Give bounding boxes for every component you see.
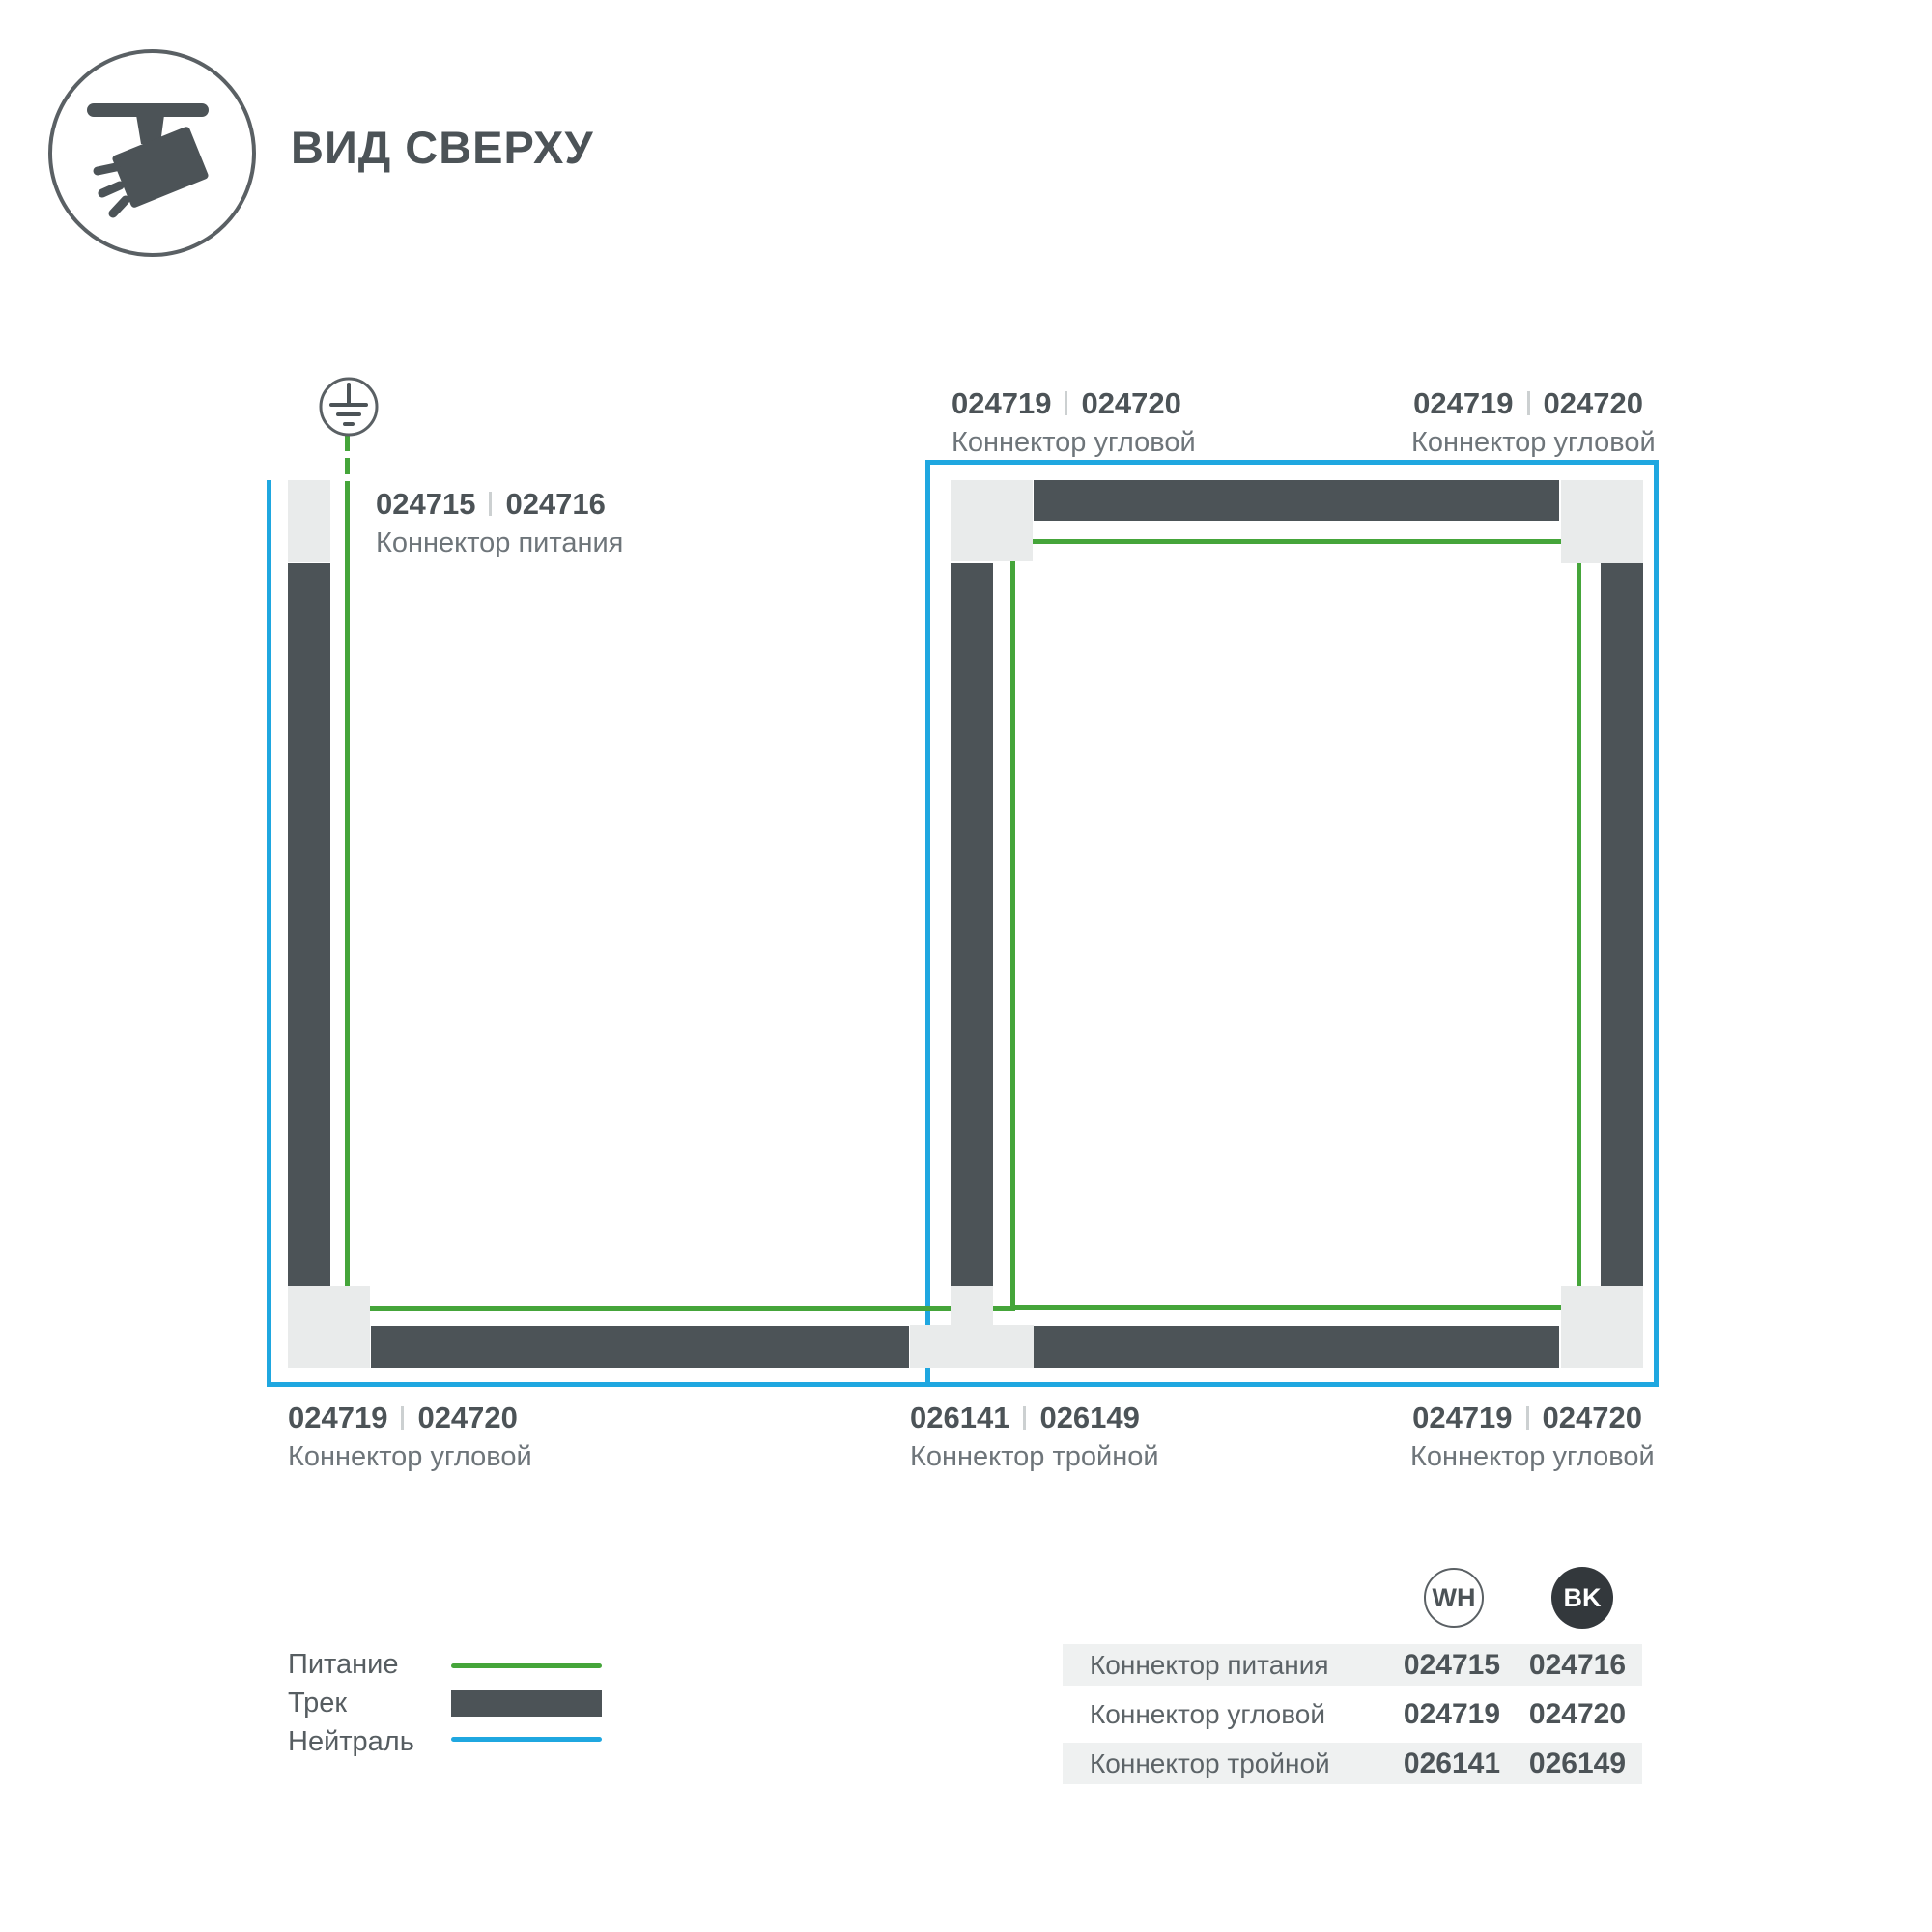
track-bar-right-vertical [1601, 563, 1643, 1286]
triple-connector-base [910, 1325, 1034, 1368]
label-name: Коннектор угловой [1411, 427, 1643, 459]
label-name: Коннектор угловой [1410, 1441, 1642, 1473]
row-bk-code: 026149 [1500, 1747, 1626, 1780]
label-power-connector: 024715 024716 Коннектор питания [376, 487, 623, 559]
row-name: Коннектор угловой [1063, 1699, 1375, 1730]
label-name: Коннектор тройной [910, 1441, 1159, 1473]
power-connector-piece [288, 480, 330, 562]
row-wh-code: 024715 [1375, 1649, 1500, 1682]
code-bk: 024720 [417, 1401, 517, 1435]
label-codes: 024719 024720 [288, 1401, 532, 1435]
code-wh: 024719 [288, 1401, 387, 1435]
legend-power-label: Питание [288, 1649, 398, 1681]
row-wh-code: 024719 [1375, 1698, 1500, 1731]
code-wh: 024719 [1412, 1401, 1512, 1435]
label-name: Коннектор питания [376, 527, 623, 559]
top-view-sheet: ВИД СВЕРХУ 024715 024716 Коннек [0, 0, 1932, 1932]
label-codes: 024719 024720 [1410, 1401, 1642, 1435]
label-codes: 024715 024716 [376, 487, 623, 522]
track-bar-right-bottom [1034, 1326, 1559, 1368]
corner-connector-piece-bottom-left [288, 1286, 370, 1368]
legend-power-swatch [451, 1663, 602, 1668]
track-bar-left-bottom [371, 1326, 909, 1368]
legend-neutral-label: Нейтраль [288, 1726, 414, 1758]
legend-track-swatch [451, 1690, 602, 1717]
label-triple-connector: 026141 026149 Коннектор тройной [910, 1401, 1159, 1473]
code-bk: 026149 [1039, 1401, 1139, 1435]
label-corner-top-right: 024719 024720 Коннектор угловой [1411, 386, 1643, 459]
code-wh: 024715 [376, 487, 475, 522]
power-line-vertical [345, 481, 350, 1311]
power-line-horizontal [345, 1306, 1015, 1311]
label-corner-top-left: 024719 024720 Коннектор угловой [952, 386, 1196, 459]
row-name: Коннектор тройной [1063, 1748, 1375, 1779]
code-divider [1527, 391, 1530, 415]
legend-neutral-swatch [451, 1737, 602, 1742]
track-bar-middle-vertical [951, 563, 993, 1286]
track-light-icon [48, 49, 256, 257]
page-title: ВИД СВЕРХУ [291, 121, 594, 174]
corner-connector-piece-top-right [1561, 480, 1643, 563]
code-bk: 024720 [1543, 1401, 1642, 1435]
track-bar-right-top [1034, 480, 1559, 521]
row-name: Коннектор питания [1063, 1650, 1375, 1681]
label-codes: 024719 024720 [952, 386, 1196, 421]
row-wh-code: 026141 [1375, 1747, 1500, 1780]
label-codes: 024719 024720 [1411, 386, 1643, 421]
code-divider [1065, 391, 1067, 415]
code-wh: 026141 [910, 1401, 1009, 1435]
label-name: Коннектор угловой [288, 1441, 532, 1473]
code-divider [1526, 1406, 1529, 1430]
ground-icon [318, 376, 380, 438]
power-loop-right [1010, 539, 1581, 1310]
label-corner-bottom-left: 024719 024720 Коннектор угловой [288, 1401, 532, 1473]
corner-connector-piece-top-middle [951, 480, 1033, 561]
power-feed-dashed-line [345, 435, 350, 483]
corner-connector-piece-bottom-right [1561, 1286, 1643, 1368]
label-name: Коннектор угловой [952, 427, 1196, 459]
table-row: Коннектор угловой 024719 024720 [1063, 1693, 1642, 1735]
triple-connector-stem [951, 1286, 993, 1326]
legend-track-label: Трек [288, 1688, 347, 1719]
code-divider [401, 1406, 404, 1430]
label-corner-bottom-right: 024719 024720 Коннектор угловой [1410, 1401, 1642, 1473]
track-light-icon-glyph [52, 53, 244, 245]
color-column-bk: BK [1551, 1567, 1613, 1629]
neutral-line-left [267, 480, 271, 1387]
row-bk-code: 024716 [1500, 1649, 1626, 1682]
row-bk-code: 024720 [1500, 1698, 1626, 1731]
table-row: Коннектор питания 024715 024716 [1063, 1644, 1642, 1686]
code-divider [1023, 1406, 1026, 1430]
code-wh: 024719 [1413, 386, 1513, 421]
track-bar-left-vertical [288, 563, 330, 1286]
code-bk: 024716 [505, 487, 605, 522]
code-bk: 024720 [1081, 386, 1180, 421]
code-divider [489, 492, 492, 516]
table-row: Коннектор тройной 026141 026149 [1063, 1743, 1642, 1784]
color-column-wh: WH [1424, 1568, 1484, 1628]
label-codes: 026141 026149 [910, 1401, 1159, 1435]
code-wh: 024719 [952, 386, 1051, 421]
code-bk: 024720 [1544, 386, 1643, 421]
